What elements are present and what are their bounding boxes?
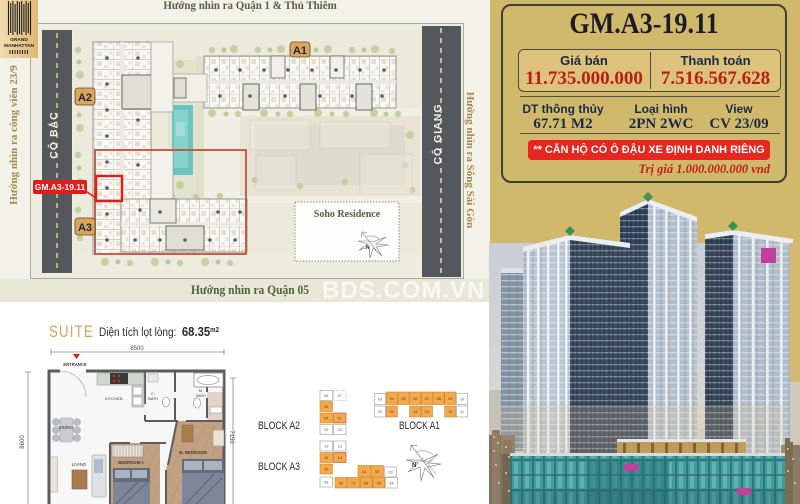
svg-text:C.: C. (151, 392, 155, 396)
svg-text:05: 05 (401, 397, 405, 401)
svg-text:12: 12 (324, 445, 328, 449)
svg-text:04: 04 (390, 397, 394, 401)
svg-text:DINING: DINING (59, 425, 74, 430)
svg-text:13: 13 (425, 410, 429, 414)
svg-text:02: 02 (338, 428, 342, 432)
svg-text:07: 07 (425, 397, 429, 401)
svg-text:10: 10 (460, 398, 464, 402)
svg-text:08: 08 (436, 397, 440, 401)
svg-text:8600: 8600 (20, 435, 26, 449)
svg-text:09: 09 (324, 481, 328, 485)
svg-text:7150: 7150 (228, 430, 234, 444)
svg-text:M.: M. (199, 389, 203, 393)
svg-text:11: 11 (324, 456, 328, 460)
svg-text:14: 14 (413, 410, 417, 414)
svg-text:05: 05 (324, 405, 328, 409)
svg-text:10: 10 (324, 468, 328, 472)
svg-text:14: 14 (338, 456, 342, 460)
svg-text:A1: A1 (293, 45, 307, 57)
svg-text:01: 01 (362, 470, 366, 474)
svg-text:A3: A3 (78, 222, 92, 234)
svg-text:GRAND: GRAND (10, 37, 28, 43)
svg-text:ENTRANCE: ENTRANCE (63, 362, 86, 367)
svg-text:07: 07 (351, 481, 355, 485)
svg-text:CÔ BẮC: CÔ BẮC (47, 111, 60, 158)
svg-text:8500: 8500 (130, 346, 144, 352)
svg-text:N: N (412, 463, 416, 469)
svg-text:07: 07 (338, 394, 342, 398)
svg-text:12: 12 (448, 410, 452, 414)
svg-text:N: N (366, 245, 370, 251)
svg-text:06: 06 (413, 397, 417, 401)
svg-text:LIVING: LIVING (72, 462, 87, 467)
svg-text:09: 09 (448, 397, 452, 401)
svg-text:06: 06 (364, 481, 368, 485)
svg-text:02: 02 (375, 470, 379, 474)
svg-text:A2: A2 (78, 92, 92, 104)
svg-text:BLOCK A1: BLOCK A1 (399, 420, 440, 432)
svg-text:06: 06 (324, 394, 328, 398)
svg-text:08: 08 (339, 481, 343, 485)
svg-text:13: 13 (338, 445, 342, 449)
svg-text:BEDROOM 2: BEDROOM 2 (118, 460, 144, 465)
svg-text:Soho Residence: Soho Residence (314, 209, 381, 220)
svg-text:04: 04 (324, 417, 328, 421)
svg-text:BLOCK A3: BLOCK A3 (258, 461, 300, 473)
svg-text:M. BEDROOM: M. BEDROOM (179, 450, 207, 455)
svg-text:05: 05 (377, 481, 381, 485)
svg-text:03: 03 (388, 471, 392, 475)
svg-text:BATH: BATH (148, 397, 158, 401)
svg-text:03: 03 (378, 398, 382, 402)
svg-text:CÔ GIANG: CÔ GIANG (431, 103, 444, 164)
svg-text:KITCHEN: KITCHEN (105, 396, 123, 401)
svg-text:04: 04 (389, 481, 393, 485)
svg-text:01: 01 (338, 417, 342, 421)
svg-text:03: 03 (324, 428, 328, 432)
svg-text:11: 11 (460, 410, 464, 414)
svg-text:BATH: BATH (196, 394, 206, 398)
svg-text:BLOCK A2: BLOCK A2 (258, 420, 300, 432)
svg-text:02: 02 (378, 410, 382, 414)
svg-text:01: 01 (390, 410, 394, 414)
